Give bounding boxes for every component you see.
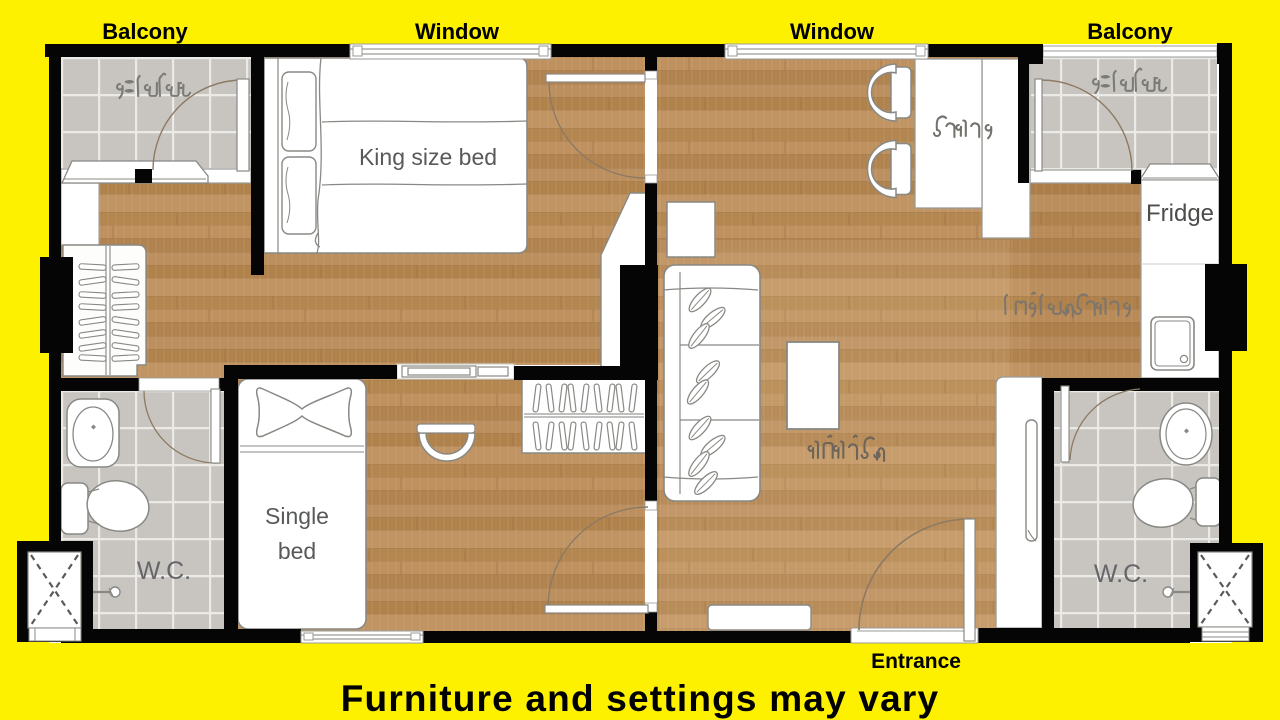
svg-text:Fridge: Fridge bbox=[1146, 200, 1214, 227]
svg-text:Window: Window bbox=[790, 19, 875, 44]
svg-text:W.C.: W.C. bbox=[1094, 560, 1148, 588]
svg-text:Balcony: Balcony bbox=[102, 19, 188, 44]
svg-text:Single: Single bbox=[265, 503, 329, 529]
svg-text:Balcony: Balcony bbox=[1087, 19, 1173, 44]
svg-text:Window: Window bbox=[415, 19, 500, 44]
svg-text:Entrance: Entrance bbox=[871, 650, 961, 673]
svg-text:Furniture and settings may var: Furniture and settings may vary bbox=[341, 678, 940, 719]
svg-text:King size bed: King size bed bbox=[359, 144, 497, 170]
svg-text:W.C.: W.C. bbox=[137, 557, 191, 585]
svg-text:bed: bed bbox=[278, 538, 316, 564]
